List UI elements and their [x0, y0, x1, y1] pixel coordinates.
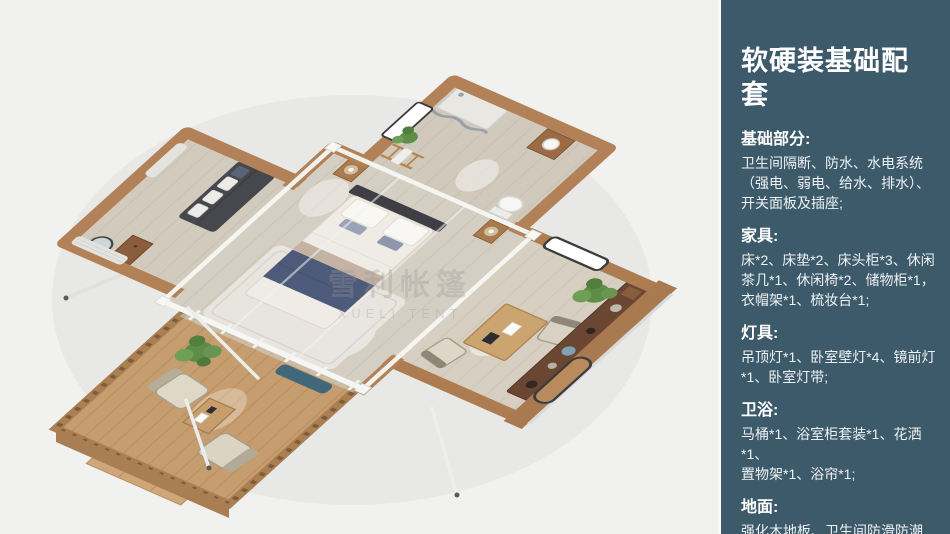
- section-flooring-body: 强化木地板、卫生间防滑防潮石 塑板;: [741, 521, 936, 534]
- floorplan-render: 雪利帐篷 XUELI TENT: [0, 0, 718, 534]
- section-flooring-heading: 地面:: [741, 498, 936, 518]
- section-basics-heading: 基础部分:: [741, 130, 936, 150]
- section-basics-body: 卫生间隔断、防水、水电系统 （强电、弱电、给水、排水）、 开关面板及插座;: [741, 153, 936, 213]
- section-lighting-heading: 灯具:: [741, 324, 936, 344]
- section-bathroom: 卫浴: 马桶*1、浴室柜套装*1、花洒*1、 置物架*1、浴帘*1;: [741, 401, 936, 484]
- section-bathroom-body: 马桶*1、浴室柜套装*1、花洒*1、 置物架*1、浴帘*1;: [741, 424, 936, 484]
- section-flooring: 地面: 强化木地板、卫生间防滑防潮石 塑板;: [741, 498, 936, 534]
- floorplan-svg: 雪利帐篷 XUELI TENT: [0, 0, 718, 534]
- watermark-cn: 雪利帐篷: [328, 269, 472, 302]
- section-furniture-heading: 家具:: [741, 227, 936, 247]
- section-lighting-body: 吊顶灯*1、卧室壁灯*4、镜前灯 *1、卧室灯带;: [741, 347, 936, 387]
- watermark-en: XUELI TENT: [338, 306, 463, 321]
- section-lighting: 灯具: 吊顶灯*1、卧室壁灯*4、镜前灯 *1、卧室灯带;: [741, 324, 936, 387]
- section-furniture: 家具: 床*2、床垫*2、床头柜*3、休闲 茶几*1、休闲椅*2、储物柜*1， …: [741, 227, 936, 310]
- section-bathroom-heading: 卫浴:: [741, 401, 936, 421]
- section-basics: 基础部分: 卫生间隔断、防水、水电系统 （强电、弱电、给水、排水）、 开关面板及…: [741, 130, 936, 213]
- slide-root: 雪利帐篷 XUELI TENT 软硬装基础配套 基础部分: 卫生间隔断、防水、水…: [0, 0, 950, 534]
- section-furniture-body: 床*2、床垫*2、床头柜*3、休闲 茶几*1、休闲椅*2、储物柜*1， 衣帽架*…: [741, 250, 936, 310]
- panel-title: 软硬装基础配套: [741, 44, 936, 112]
- spec-panel: 软硬装基础配套 基础部分: 卫生间隔断、防水、水电系统 （强电、弱电、给水、排水…: [718, 0, 950, 534]
